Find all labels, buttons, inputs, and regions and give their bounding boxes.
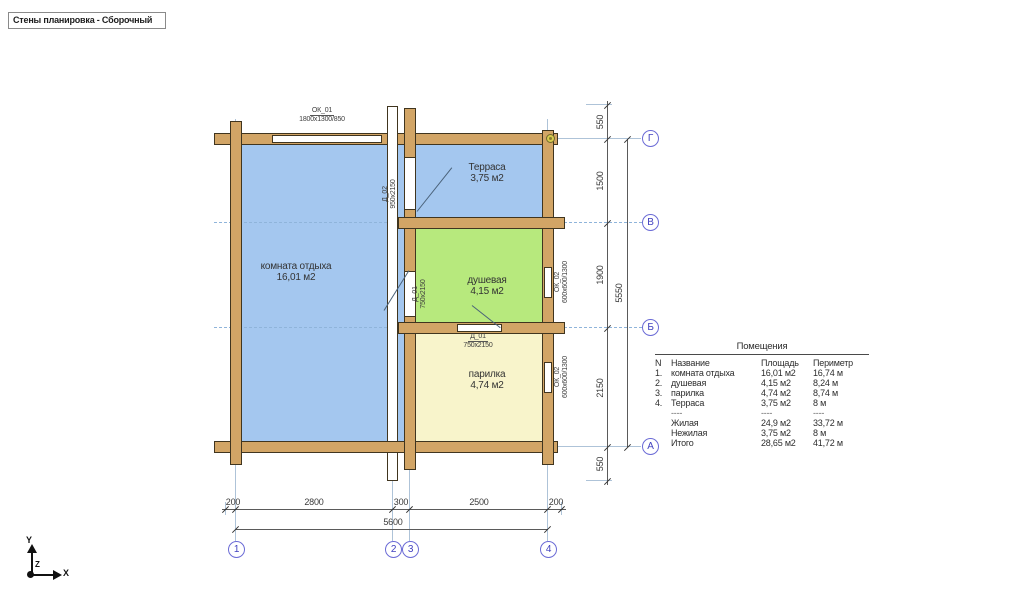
axis-bubble-3: 3	[402, 541, 419, 558]
rooms-table-title: Помещения	[655, 341, 869, 355]
ucs-origin-dot	[27, 571, 34, 578]
opening-size: 600х600/1300	[562, 261, 570, 303]
table-row: 4. Терраса 3,75 м2 8 м	[655, 398, 869, 408]
room-area: 3,75 м2	[417, 173, 557, 184]
axis-bubble-g: Г	[642, 130, 659, 147]
label-window-ok02-sauna: ОК_02 600х600/1300	[554, 342, 570, 412]
axis-bubble-2: 2	[385, 541, 402, 558]
dim-value: 2500	[459, 497, 499, 507]
room-area: 16,01 м2	[226, 272, 366, 283]
cell-perimeter: 41,72 м	[813, 438, 869, 448]
label-door-d02: Д_02 950х2150	[382, 159, 398, 229]
axis-bubble-4: 4	[540, 541, 557, 558]
opening-id: Д_01	[412, 286, 420, 302]
table-row: 1. комната отдыха 16,01 м2 16,74 м	[655, 368, 869, 378]
opening-size: 950х2150	[390, 179, 398, 208]
cell-name: парилка	[671, 388, 761, 398]
dim-total-value: 5550	[614, 273, 624, 313]
opening-id: ОК_02	[554, 367, 562, 387]
drawing-canvas: Стены планировка - Сборочный комната отд…	[0, 0, 1024, 608]
wall-top[interactable]	[214, 133, 558, 145]
dim-line-bottom-total	[236, 529, 548, 530]
room-area: 4,74 м2	[417, 380, 557, 391]
dim-value: 2150	[595, 368, 605, 408]
cell-name: комната отдыха	[671, 368, 761, 378]
label-window-ok01: ОК_01 1800х1300/850	[262, 107, 382, 124]
room-area: 4,15 м2	[417, 286, 557, 297]
wall-left[interactable]	[230, 121, 242, 465]
cell-n: 2.	[655, 378, 671, 388]
cell-perimeter: 33,72 м	[813, 418, 869, 428]
room-label-sauna: парилка 4,74 м2	[417, 369, 557, 391]
dim-value: 1500	[595, 161, 605, 201]
opening-id: Д_02	[382, 186, 390, 202]
label-door-d01-horizontal: Д_01 750х2150	[428, 333, 528, 350]
wall-row-v[interactable]	[398, 217, 565, 229]
dim-value: 200	[536, 497, 576, 507]
ucs-y-label: Y	[26, 535, 32, 545]
col-header-name: Название	[671, 358, 761, 368]
cell-area: 28,65 м2	[761, 438, 813, 448]
col-header-n: N	[655, 358, 671, 368]
witness-line	[392, 481, 393, 541]
cell-perimeter: 8 м	[813, 428, 869, 438]
cell-name: ----	[671, 408, 761, 418]
axis-bubble-a: А	[642, 438, 659, 455]
room-name: парилка	[417, 369, 557, 380]
ucs-x-label: X	[63, 568, 69, 578]
cell-n	[655, 408, 671, 418]
cell-area: 24,9 м2	[761, 418, 813, 428]
dim-value: 550	[595, 102, 605, 142]
dim-value: 1900	[595, 255, 605, 295]
cell-name: душевая	[671, 378, 761, 388]
room-name: Терраса	[417, 162, 557, 173]
window-ok01[interactable]	[272, 135, 382, 143]
cell-area: ----	[761, 408, 813, 418]
cell-area: 4,74 м2	[761, 388, 813, 398]
table-row: Жилая 24,9 м2 33,72 м	[655, 418, 869, 428]
view-title-tab[interactable]: Стены планировка - Сборочный	[8, 12, 166, 29]
ucs-x-axis	[33, 574, 54, 576]
ucs-y-arrow-icon	[27, 544, 37, 553]
axis-bubble-v: В	[642, 214, 659, 231]
axis-bubble-1: 1	[228, 541, 245, 558]
ucs-x-arrow-icon	[53, 570, 62, 580]
cell-n: 1.	[655, 368, 671, 378]
opening-id: ОК_02	[554, 272, 562, 292]
table-row-separator: ---- ---- ----	[655, 408, 869, 418]
room-label-terrace: Терраса 3,75 м2	[417, 162, 557, 184]
rooms-table: Помещения N Название Площадь Периметр 1.…	[655, 341, 869, 448]
cell-area: 16,01 м2	[761, 368, 813, 378]
label-window-ok02-shower: ОК_02 600х600/1300	[554, 247, 570, 317]
opening-size: 750х2150	[420, 279, 428, 308]
dim-value: 200	[213, 497, 253, 507]
dim-value: 550	[595, 444, 605, 484]
opening-id: Д_01	[468, 333, 488, 342]
room-label-shower: душевая 4,15 м2	[417, 275, 557, 297]
cell-n: 4.	[655, 398, 671, 408]
room-name: комната отдыха	[226, 261, 366, 272]
dim-total-value: 5600	[373, 517, 413, 527]
col-header-perimeter: Периметр	[813, 358, 869, 368]
cell-name: Терраса	[671, 398, 761, 408]
cell-perimeter: 16,74 м	[813, 368, 869, 378]
dim-value: 2800	[294, 497, 334, 507]
axis-bubble-b: Б	[642, 319, 659, 336]
dim-line-bottom	[222, 509, 566, 510]
door-d02[interactable]	[404, 157, 416, 210]
room-label-lounge: комната отдыха 16,01 м2	[226, 261, 366, 283]
opening-id: ОК_01	[310, 107, 334, 116]
cell-area: 3,75 м2	[761, 398, 813, 408]
table-row: Нежилая 3,75 м2 8 м	[655, 428, 869, 438]
col-header-area: Площадь	[761, 358, 813, 368]
cell-n	[655, 418, 671, 428]
witness-line	[547, 119, 548, 130]
table-row: 3. парилка 4,74 м2 8,74 м	[655, 388, 869, 398]
cell-area: 3,75 м2	[761, 428, 813, 438]
rooms-table-header: N Название Площадь Периметр	[655, 358, 869, 368]
cell-name: Жилая	[671, 418, 761, 428]
opening-size: 1800х1300/850	[299, 116, 345, 123]
dim-value: 300	[381, 497, 421, 507]
cell-area: 4,15 м2	[761, 378, 813, 388]
ucs-z-label: Z	[35, 560, 40, 569]
dim-line-right-total	[627, 139, 628, 447]
cell-perimeter: 8,24 м	[813, 378, 869, 388]
opening-size: 750х2150	[463, 342, 492, 349]
table-row: 2. душевая 4,15 м2 8,24 м	[655, 378, 869, 388]
room-name: душевая	[417, 275, 557, 286]
wall-bottom-over-partition	[386, 441, 399, 453]
cell-name: Итого	[671, 438, 761, 448]
table-row-total: Итого 28,65 м2 41,72 м	[655, 438, 869, 448]
cell-name: Нежилая	[671, 428, 761, 438]
vertex-marker-icon[interactable]	[546, 134, 555, 143]
cell-perimeter: 8,74 м	[813, 388, 869, 398]
cell-n	[655, 428, 671, 438]
opening-size: 600х600/1300	[562, 356, 570, 398]
dim-line-right	[607, 101, 608, 485]
cell-perimeter: 8 м	[813, 398, 869, 408]
cell-perimeter: ----	[813, 408, 869, 418]
label-door-d01-vertical: Д_01 750х2150	[412, 259, 428, 329]
cell-n: 3.	[655, 388, 671, 398]
